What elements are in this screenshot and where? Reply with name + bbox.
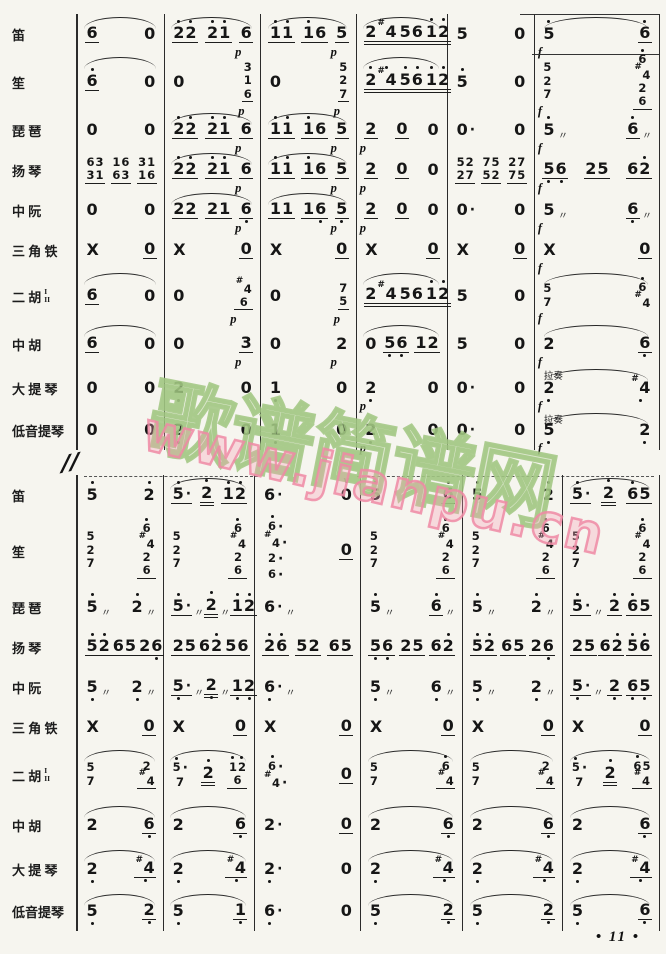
note: 6·#4· — [262, 760, 288, 791]
chord-stack: 5·7 — [171, 761, 189, 790]
chord-note: 3 — [243, 62, 252, 74]
note: 57 — [368, 762, 379, 788]
note-digit: 2 — [571, 817, 583, 833]
octave-dot-below — [576, 922, 579, 925]
note-digit: 0 — [514, 241, 526, 257]
note: 0 — [143, 202, 157, 219]
system-2: 笛525·2126·0v56525·265笙5276#4265276#4266·… — [0, 475, 666, 931]
note-glyphs: X — [262, 719, 277, 736]
note-digit: 6 — [411, 286, 423, 302]
note: 2p — [364, 201, 378, 219]
sharp-sign: # — [634, 290, 642, 300]
note-digit: 7 — [508, 170, 517, 182]
note: 2〃 — [130, 679, 156, 696]
note-glyphs: 65 — [327, 638, 353, 656]
chord-stack: 6·#4·2·6· — [262, 520, 288, 583]
note: 2 — [368, 861, 382, 878]
measure: 5〃f6〃 — [535, 110, 660, 150]
music-line: 572#45·721266·#4·0576#4572#45·7265#4 — [76, 747, 660, 803]
measure: 5f2 — [535, 410, 660, 450]
note-digit: 2 — [172, 545, 181, 557]
note-digit: 6 — [382, 638, 394, 654]
chord-note: #4 — [138, 774, 155, 787]
note-digit: 5 — [471, 679, 483, 695]
note: 65 — [626, 678, 652, 696]
measure: 2p0 — [357, 366, 448, 410]
note: 0 — [239, 380, 253, 397]
note-glyphs: 2 — [200, 485, 214, 506]
page-number: • 11 • — [596, 929, 640, 946]
note-digit: 0 — [240, 422, 252, 438]
note-digit: 0 — [144, 336, 156, 352]
sharp-sign: # — [631, 855, 639, 865]
note: 2 — [638, 422, 652, 439]
note-glyphs: 65 — [500, 638, 526, 656]
note: 57f — [542, 283, 553, 309]
chord-stack: 57 — [470, 762, 481, 788]
note: 527 — [85, 531, 96, 571]
note: #4 — [630, 860, 652, 878]
octave-dot-above — [91, 633, 94, 636]
note-digit: 5 — [369, 599, 381, 615]
note: 2 — [142, 487, 156, 504]
octave-dot-below — [547, 441, 550, 444]
note-glyphs: 0 — [268, 74, 282, 91]
note: 0 — [426, 122, 440, 139]
note: 0 — [513, 74, 527, 91]
note: 6 — [638, 902, 652, 920]
octave-dot-above — [307, 156, 310, 159]
note: X — [268, 242, 283, 259]
note-glyphs: 2 — [541, 902, 555, 920]
sharp-sign: # — [538, 768, 546, 778]
note: 6 — [85, 335, 99, 353]
note-digit: 6 — [315, 121, 327, 137]
octave-dot-below — [400, 354, 403, 357]
note-digit: 5 — [627, 638, 639, 654]
measure: 5276#426 — [164, 515, 255, 587]
note: 527 — [470, 531, 481, 571]
note: 11 — [268, 25, 294, 43]
measure: 0527p — [261, 54, 356, 110]
measure: 5〃2〃 — [463, 587, 563, 627]
measure: 0·0 — [448, 366, 535, 410]
tremolo-mark: 〃 — [593, 604, 603, 619]
measure: 02p — [261, 322, 356, 366]
note: 2p — [364, 161, 378, 179]
note: X — [470, 719, 485, 736]
measure: 5·〃2〃12 — [164, 587, 255, 627]
octave-dot-above — [613, 593, 616, 596]
note-glyphs: 2 — [364, 201, 378, 219]
note-digit: 7 — [369, 776, 378, 788]
octave-dot-below — [210, 696, 213, 699]
note-digit: 1 — [281, 161, 293, 177]
note-digit: 6 — [240, 161, 252, 177]
measure: 5276#426 — [361, 515, 463, 587]
note: X — [85, 719, 100, 736]
note-digit: 6 — [234, 816, 246, 832]
note: 5f — [542, 26, 556, 43]
note-glyphs: 5 — [85, 903, 99, 920]
tremolo-mark: 〃 — [220, 604, 230, 619]
note: 2#4 — [364, 24, 398, 45]
note: 0 — [513, 336, 527, 353]
note-digit: #4 — [631, 860, 651, 876]
note: 5p — [335, 201, 349, 219]
note: 5 — [171, 903, 185, 920]
note-glyphs: 5 — [470, 599, 484, 616]
note: 12 — [230, 598, 256, 616]
chord-stack: 6331 — [85, 157, 105, 184]
note-glyphs: 5 — [542, 422, 556, 439]
octave-dot-above — [641, 518, 644, 521]
octave-dot-above — [211, 20, 214, 23]
score: 笛6022216p11165p2#45612505f6笙600316p0527p… — [0, 0, 666, 931]
note-digit: 1 — [281, 201, 293, 217]
note-glyphs: 1 — [233, 902, 247, 920]
note: 6 — [85, 287, 99, 305]
note-digit: 2 — [365, 380, 377, 396]
note-glyphs: 16 — [301, 121, 327, 139]
note-digit: 5 — [491, 157, 500, 169]
note: 2p — [364, 121, 378, 139]
note-digit: 2 — [442, 638, 454, 654]
note-digit: 5 — [543, 161, 555, 177]
measure: X0 — [563, 707, 660, 747]
chord-note: 6 — [638, 565, 647, 577]
note-digit: 2 — [206, 121, 218, 137]
octave-dot-above — [286, 156, 289, 159]
note-glyphs: 0· — [455, 422, 476, 439]
note: 0 — [395, 201, 409, 219]
note: 65 — [626, 486, 652, 504]
note-digit: 0 — [514, 336, 526, 352]
chord-note: 52 — [482, 170, 500, 182]
octave-dot-below — [643, 835, 646, 838]
note-digit: 2 — [173, 121, 185, 137]
note: 12 — [424, 286, 450, 307]
note-digit: X — [543, 242, 556, 258]
measure: 5·72126 — [164, 747, 255, 803]
measure: 2#45612 — [357, 270, 448, 322]
note: X — [364, 242, 379, 259]
duration-dot: · — [278, 520, 283, 534]
measure: 526526 — [78, 627, 164, 667]
octave-dot-above — [430, 18, 433, 21]
sharp-sign: # — [135, 855, 143, 865]
chord-note: 5 — [471, 762, 480, 774]
note: 0 — [513, 241, 527, 259]
octave-dot-below — [248, 697, 251, 700]
note-digit: 3 — [138, 157, 147, 169]
note-digit: 0 — [514, 122, 526, 138]
chord-note: 6 — [541, 565, 550, 577]
octave-dot-below — [236, 697, 239, 700]
chord-note: 6 — [243, 89, 252, 101]
note-digit: 6 — [599, 638, 611, 654]
note: 75p — [338, 283, 349, 310]
chord-stack: 6#426 — [633, 523, 652, 579]
score-row-sanjiaotie: 三 角 铁X0X0X0X0X0X0 — [0, 707, 666, 747]
measure: X0 — [255, 707, 361, 747]
measure: 2p00 — [357, 190, 448, 230]
chord-stack: 6·#4· — [262, 760, 288, 791]
octave-dot-below — [547, 921, 550, 924]
note-digit: 6 — [542, 816, 554, 832]
music-line: 0020102p00·05f2 — [76, 410, 660, 450]
chord-note: 5· — [172, 761, 188, 775]
chord-note: 2 — [369, 545, 378, 557]
note-glyphs: 5 — [335, 201, 349, 219]
note-glyphs: 2#4 — [364, 24, 398, 45]
score-row-diyintiqin: 低音提琴0020102p00·05f2 — [0, 410, 666, 450]
measure: 572#4 — [78, 747, 164, 803]
note-digit: 2 — [441, 552, 450, 564]
note-digit: #4 — [263, 536, 280, 549]
note-digit: 6 — [142, 565, 151, 577]
note-digit: 6 — [198, 638, 210, 654]
note-glyphs: X — [542, 242, 557, 259]
instrument-label: 笛 — [0, 14, 76, 54]
note-digit: 6 — [555, 161, 567, 177]
octave-dot-below — [576, 697, 579, 700]
octave-dot-above — [643, 633, 646, 636]
octave-dot-above — [636, 755, 639, 758]
sharp-sign: # — [236, 276, 244, 286]
note-digit: 5 — [412, 638, 424, 654]
note: 2 — [470, 817, 484, 834]
octave-dot-below — [369, 399, 372, 402]
chord-note: #4 — [634, 68, 651, 81]
note-glyphs: 5 — [455, 26, 469, 43]
chord-stack: 527 — [85, 531, 96, 571]
chord-note: 2 — [233, 552, 242, 564]
note-digit: 2 — [201, 485, 213, 501]
octave-dot-above — [215, 633, 218, 636]
chord-note: 2 — [638, 552, 647, 564]
note-digit: 2 — [143, 902, 155, 918]
note-digit: 6 — [441, 565, 450, 577]
note-glyphs: 56 — [368, 638, 394, 656]
note-glyphs: 22 — [172, 25, 198, 43]
chord-stack: 2#4 — [137, 761, 156, 790]
note: 16 — [301, 201, 327, 219]
note-digit: 5 — [571, 531, 580, 543]
note-glyphs: 25 — [570, 638, 596, 656]
measure: 22216p — [165, 190, 262, 230]
note-digit: 5 — [86, 679, 98, 695]
octave-dot-below — [369, 441, 372, 444]
chord-note: #4 — [437, 774, 454, 787]
octave-dot-above — [435, 593, 438, 596]
note-digit: 0 — [144, 202, 156, 218]
note-digit: 6 — [430, 679, 442, 695]
note-digit: 7 — [575, 777, 584, 789]
note-glyphs: 0 — [339, 487, 353, 504]
measure: 5〃2〃 — [463, 667, 563, 707]
octave-dot-below — [91, 922, 94, 925]
note-glyphs: 5· — [570, 486, 591, 504]
instrument-name: 琵 琶 — [12, 121, 41, 140]
measure: 00 — [78, 366, 165, 410]
note: 65 — [327, 638, 353, 656]
note: 5·〃 — [570, 678, 603, 696]
note-digit: 5 — [471, 487, 483, 503]
measure: 2p0 — [357, 410, 448, 450]
note-glyphs: 2 — [570, 817, 584, 834]
music-line: 0022216p11165p2p000·05〃f6〃 — [76, 190, 660, 230]
note: 0 — [426, 422, 440, 439]
note-glyphs: 0 — [172, 288, 186, 305]
instrument-name: 扬 琴 — [12, 161, 41, 180]
note-glyphs: 6 — [85, 335, 99, 353]
instrument-name: 中 胡 — [12, 816, 41, 835]
note: 12 — [221, 486, 247, 504]
octave-dot-above — [177, 116, 180, 119]
measure: 522775522775 — [448, 150, 535, 190]
note-digit: 2 — [427, 335, 439, 351]
octave-dot-below — [136, 698, 139, 701]
measure: X0 — [165, 230, 262, 270]
note-glyphs: 56 — [626, 638, 652, 656]
score-row-sheng: 笙600316p0527p2#4561250527f6#426 — [0, 54, 666, 110]
note-digit: 5 — [172, 678, 184, 694]
chord-stack: 527 — [570, 531, 581, 571]
note-digit: 2 — [173, 161, 185, 177]
note-digit: 0 — [639, 718, 651, 734]
octave-dot-below — [319, 220, 322, 223]
note-digit: 2 — [205, 597, 217, 613]
measure: 52 — [463, 475, 563, 515]
octave-dot-above — [177, 156, 180, 159]
note-glyphs: 0 — [335, 422, 349, 439]
octave-dot-below — [245, 220, 248, 223]
sharp-sign: # — [139, 768, 147, 778]
note-digit: 2 — [206, 25, 218, 41]
note-digit: 0 — [86, 380, 98, 396]
note-glyphs: 2 — [364, 380, 378, 397]
note: 5p — [335, 161, 349, 179]
note-digit: 2 — [471, 861, 483, 877]
duration-dot: · — [186, 679, 191, 693]
note-digit: 1 — [281, 121, 293, 137]
note-digit: 6 — [639, 902, 651, 918]
note-digit: 1 — [425, 72, 437, 88]
note-digit: #4 — [377, 24, 397, 40]
note-digit: 1 — [302, 201, 314, 217]
note-digit: 2 — [98, 638, 110, 654]
note-glyphs: 5 — [335, 121, 349, 139]
note-digit: 2 — [185, 201, 197, 217]
octave-dot-below — [547, 835, 550, 838]
instrument-label: 低音提琴 — [0, 891, 76, 931]
note: 0 — [233, 718, 247, 736]
instrument-name: 低音提琴 — [12, 902, 64, 921]
score-row-di: 笛6022216p11165p2#45612505f6 — [0, 14, 666, 54]
note-glyphs: 0 — [339, 903, 353, 920]
note-digit: 7 — [172, 558, 181, 570]
tremolo-mark: 〃 — [194, 604, 204, 619]
note-digit: 6 — [121, 157, 130, 169]
note: 1 — [268, 380, 282, 397]
note: 5〃 — [368, 679, 394, 696]
note: 6 — [85, 25, 99, 43]
note-glyphs: 0· — [455, 380, 476, 397]
chord-note: 6 — [239, 297, 248, 309]
chord-note: #4 — [634, 537, 651, 550]
note: 62 — [429, 638, 455, 656]
note-digit: 1 — [219, 25, 231, 41]
tremolo-mark: 〃 — [101, 684, 111, 699]
note-glyphs: 0 — [335, 380, 349, 397]
note-digit: 2 — [543, 380, 555, 396]
note: 2 — [441, 902, 455, 920]
octave-dot-above — [641, 49, 644, 52]
note-digit: #4 — [138, 774, 155, 787]
octave-dot-above — [476, 593, 479, 596]
note-digit: 2 — [483, 638, 495, 654]
note: 0· — [455, 422, 476, 439]
note-digit: 6 — [237, 638, 249, 654]
note-digit: 5 — [172, 903, 184, 919]
note: 2 — [85, 817, 99, 834]
note-digit: 1 — [219, 161, 231, 177]
measure: 11165p — [261, 150, 356, 190]
note: 6·〃 — [262, 599, 295, 616]
dynamic-mark: p — [360, 441, 366, 456]
note: 6 — [142, 816, 156, 834]
note: 5· — [570, 486, 591, 504]
chord-note: 6 — [233, 565, 242, 577]
score-row-pipa: 琵 琶5〃2〃5·〃2〃126·〃5〃6〃5〃2〃5·〃265 — [0, 587, 666, 627]
measure: 5·〃265 — [563, 587, 660, 627]
chord-note: 7 — [471, 558, 480, 570]
note-glyphs: 5· — [171, 486, 192, 504]
note-glyphs: 2 — [172, 422, 186, 439]
music-line: 0020102p00·02f拉奏#4 — [76, 366, 660, 410]
note-glyphs: 6 — [638, 902, 652, 920]
octave-dot-above — [207, 759, 210, 762]
note-digit: 0 — [365, 336, 377, 352]
tremolo-mark: 〃 — [558, 207, 568, 222]
note-glyphs: 5· — [171, 598, 192, 616]
score-row-erhu: 二 胡III600#46p075p2#456125057f6#4 — [0, 270, 666, 322]
note: #4 — [134, 860, 156, 878]
note-digit: 6 — [233, 565, 242, 577]
octave-dot-below — [476, 698, 479, 701]
note-glyphs: 0 — [513, 288, 527, 305]
octave-dot-below — [643, 697, 646, 700]
note-glyphs: 22 — [172, 161, 198, 179]
note-digit: 1 — [269, 201, 281, 217]
note-digit: 0 — [427, 422, 439, 438]
note-glyphs: 62 — [197, 638, 223, 656]
note: 6p — [239, 121, 253, 139]
note: 56 — [398, 24, 424, 45]
note-glyphs: 5 — [335, 161, 349, 179]
chord-stack: 527 — [338, 62, 349, 103]
note-glyphs: 12 — [414, 335, 440, 353]
measure: 10 — [261, 410, 356, 450]
note-glyphs: 6 — [441, 486, 455, 504]
octave-dot-above — [274, 156, 277, 159]
score-row-zhonghu: 中 胡6003p02p05612502f拉奏6 — [0, 322, 666, 366]
note-digit: 0 — [144, 288, 156, 304]
octave-dot-below — [613, 697, 616, 700]
note: 0 — [513, 288, 527, 305]
note: X — [85, 242, 100, 259]
